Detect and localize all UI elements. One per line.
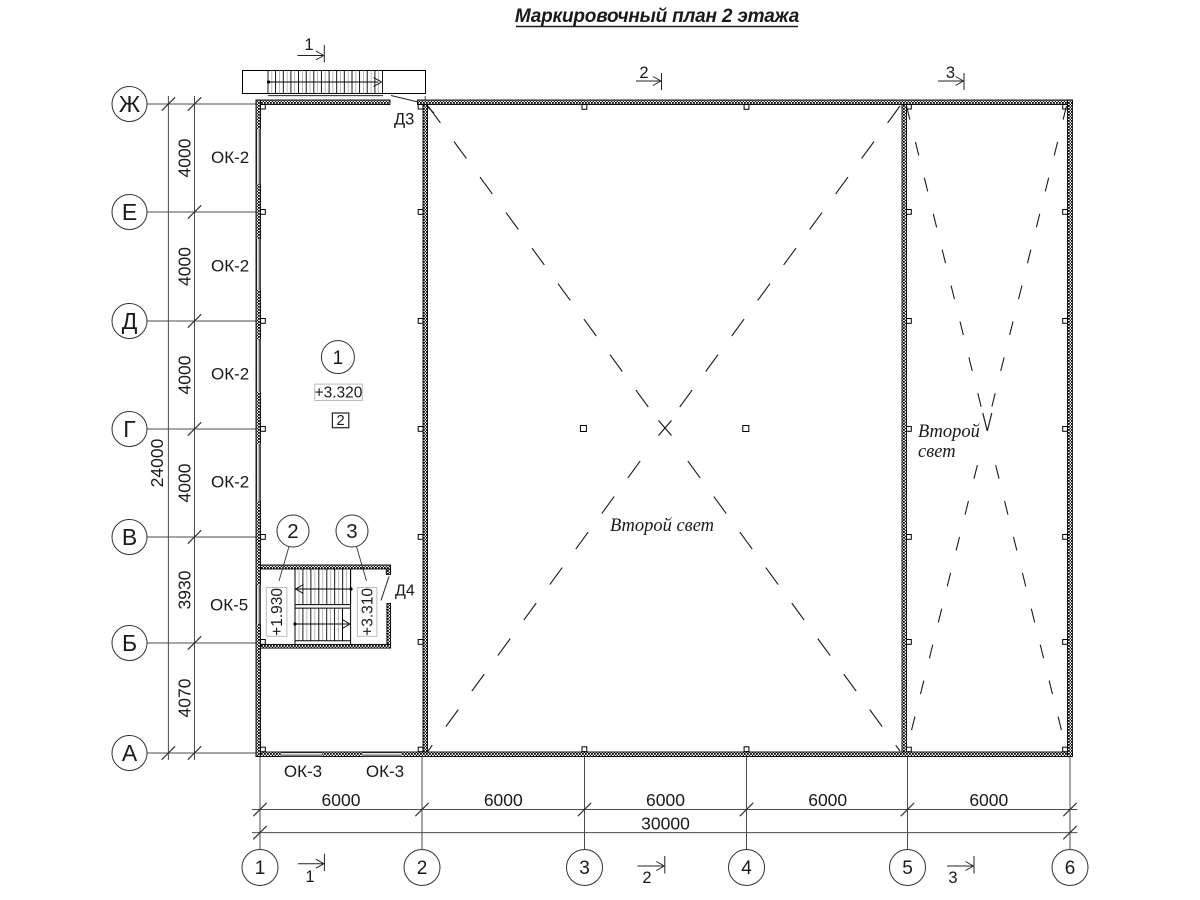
svg-text:4: 4 bbox=[741, 858, 752, 879]
svg-text:Б: Б bbox=[122, 630, 137, 656]
svg-text:1: 1 bbox=[305, 868, 314, 886]
svg-text:6000: 6000 bbox=[969, 790, 1008, 810]
svg-text:24000: 24000 bbox=[147, 438, 167, 487]
svg-text:ОК-3: ОК-3 bbox=[366, 762, 404, 781]
svg-text:Д3: Д3 bbox=[394, 111, 414, 129]
svg-text:6000: 6000 bbox=[322, 790, 361, 810]
svg-text:4000: 4000 bbox=[175, 138, 195, 177]
svg-text:А: А bbox=[122, 740, 138, 766]
svg-text:Маркировочный план 2 этажа: Маркировочный план 2 этажа bbox=[515, 6, 800, 27]
svg-text:Второй свет: Второй свет bbox=[610, 516, 714, 536]
svg-text:+1.930: +1.930 bbox=[269, 588, 286, 636]
svg-text:4000: 4000 bbox=[175, 247, 195, 286]
svg-text:2: 2 bbox=[639, 64, 648, 82]
svg-text:3: 3 bbox=[579, 858, 590, 879]
svg-text:5: 5 bbox=[902, 858, 913, 879]
svg-text:4070: 4070 bbox=[175, 678, 195, 717]
svg-text:Д4: Д4 bbox=[395, 583, 415, 600]
svg-text:ОК-2: ОК-2 bbox=[211, 148, 249, 167]
svg-text:3: 3 bbox=[346, 520, 357, 543]
svg-text:ОК-2: ОК-2 bbox=[211, 365, 249, 384]
svg-text:Ж: Ж bbox=[119, 91, 140, 117]
svg-text:1: 1 bbox=[333, 348, 344, 369]
svg-text:+3.310: +3.310 bbox=[360, 588, 377, 636]
svg-text:Второй: Второй bbox=[918, 422, 981, 442]
svg-text:6000: 6000 bbox=[808, 790, 847, 810]
svg-text:4000: 4000 bbox=[175, 463, 195, 502]
svg-text:6000: 6000 bbox=[646, 790, 685, 810]
svg-text:ОК-3: ОК-3 bbox=[284, 762, 322, 781]
svg-text:Е: Е bbox=[122, 199, 137, 225]
svg-text:6000: 6000 bbox=[484, 790, 523, 810]
svg-text:ОК-2: ОК-2 bbox=[211, 473, 249, 492]
svg-text:3: 3 bbox=[948, 869, 957, 887]
svg-text:3: 3 bbox=[946, 64, 955, 82]
svg-text:ОК-5: ОК-5 bbox=[210, 596, 248, 615]
svg-text:6: 6 bbox=[1065, 858, 1076, 879]
svg-text:свет: свет bbox=[918, 442, 956, 462]
svg-text:2: 2 bbox=[336, 412, 344, 429]
svg-text:2: 2 bbox=[287, 520, 298, 543]
svg-text:3930: 3930 bbox=[175, 570, 195, 609]
svg-text:30000: 30000 bbox=[641, 814, 690, 834]
svg-text:4000: 4000 bbox=[175, 355, 195, 394]
svg-text:ОК-2: ОК-2 bbox=[211, 257, 249, 276]
svg-text:В: В bbox=[122, 524, 137, 550]
svg-text:1: 1 bbox=[255, 858, 266, 879]
svg-text:1: 1 bbox=[304, 36, 313, 54]
svg-text:+3.320: +3.320 bbox=[315, 385, 363, 402]
svg-text:2: 2 bbox=[642, 869, 651, 887]
svg-text:Д: Д bbox=[122, 308, 138, 334]
svg-text:2: 2 bbox=[417, 858, 428, 879]
svg-text:Г: Г bbox=[123, 416, 136, 442]
